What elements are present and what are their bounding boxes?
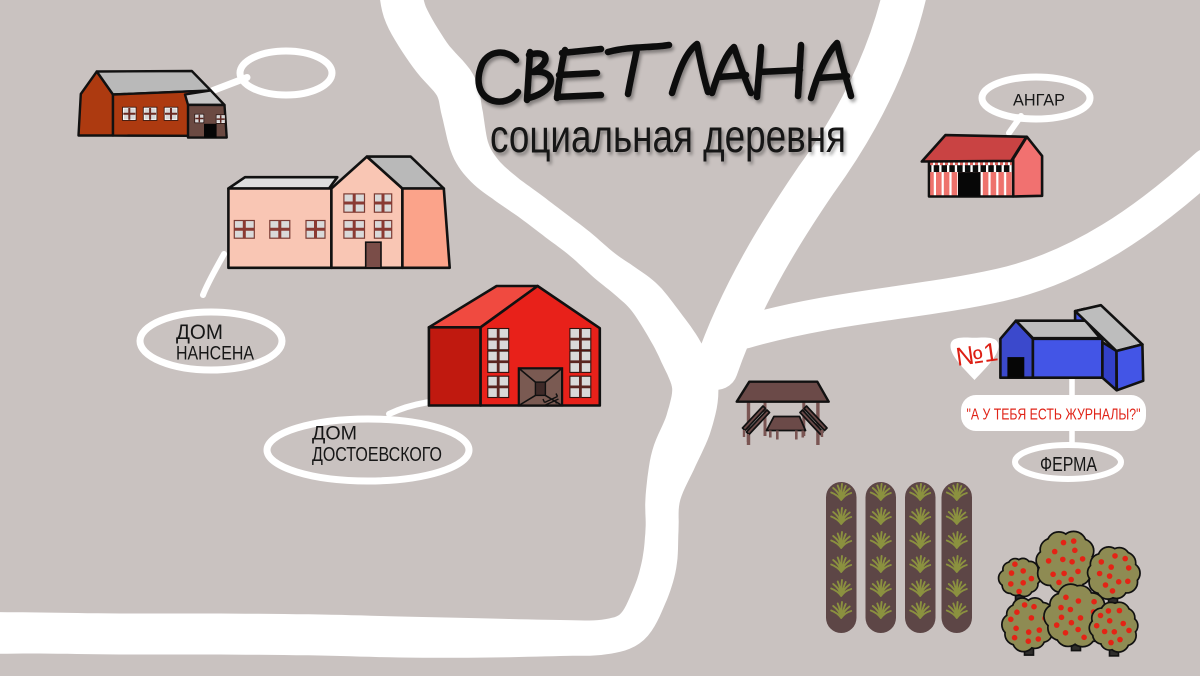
svg-text:НАНСЕНА: НАНСЕНА bbox=[176, 343, 254, 365]
svg-text:ДОМ: ДОМ bbox=[176, 321, 223, 344]
svg-text:социальная деревня: социальная деревня bbox=[490, 110, 846, 162]
svg-text:№1: №1 bbox=[954, 336, 1000, 372]
svg-text:АНГАР: АНГАР bbox=[1013, 91, 1065, 110]
svg-text:"А У ТЕБЯ ЕСТЬ ЖУРНАЛЫ?": "А У ТЕБЯ ЕСТЬ ЖУРНАЛЫ?" bbox=[967, 407, 1141, 424]
svg-text:ДОМ: ДОМ bbox=[312, 424, 357, 445]
svg-text:ФЕРМА: ФЕРМА bbox=[1040, 454, 1098, 476]
svg-text:ДОСТОЕВСКОГО: ДОСТОЕВСКОГО bbox=[312, 443, 442, 466]
